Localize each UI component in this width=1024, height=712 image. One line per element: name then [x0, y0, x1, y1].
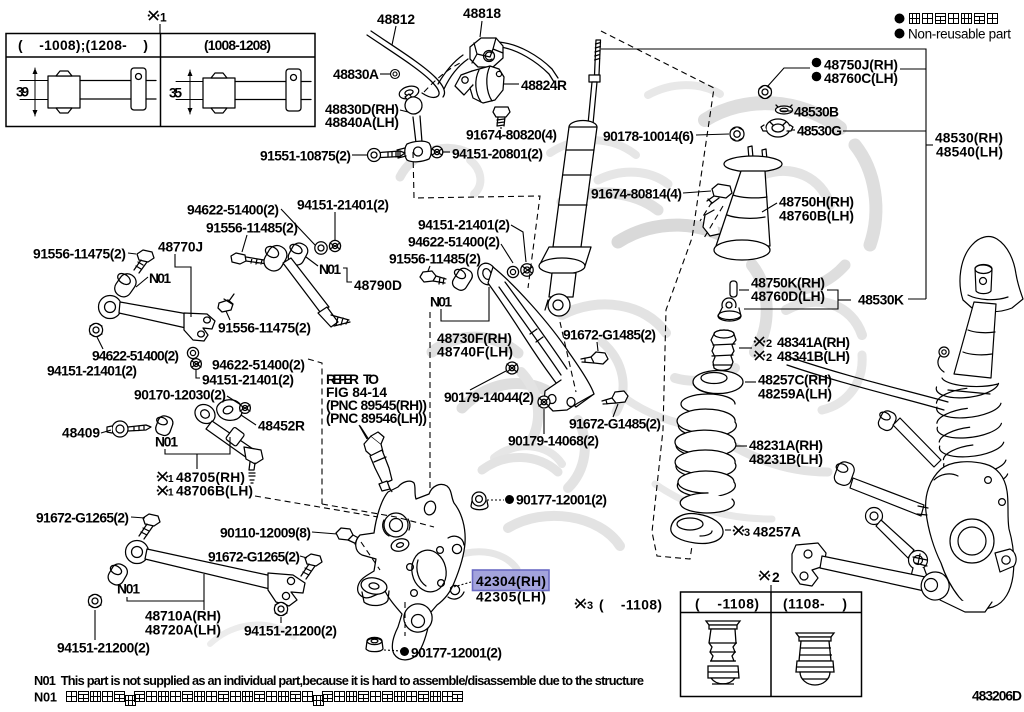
svg-text:N01: N01: [155, 435, 178, 450]
svg-text:94151-21200(2): 94151-21200(2): [57, 641, 150, 656]
svg-text:91672-G1485(2): 91672-G1485(2): [569, 417, 661, 432]
svg-text:3: 3: [587, 600, 593, 612]
svg-text:( -1108): ( -1108): [695, 597, 759, 612]
svg-text:48750H(RH): 48750H(RH): [779, 195, 854, 210]
svg-text:94151-21401(2): 94151-21401(2): [418, 218, 510, 233]
svg-text:48341A(RH): 48341A(RH): [777, 335, 850, 350]
svg-text:2: 2: [766, 352, 772, 364]
svg-text:91674-80814(4): 91674-80814(4): [591, 187, 682, 202]
svg-text:90170-12030(2): 90170-12030(2): [134, 388, 226, 403]
svg-text:94151-20801(2): 94151-20801(2): [452, 147, 543, 162]
svg-text:( -1008);(1208- ): ( -1008);(1208- ): [18, 38, 148, 53]
svg-text:48540(LH): 48540(LH): [936, 145, 1003, 160]
svg-text:48530K: 48530K: [858, 293, 904, 308]
svg-text:42304(RH): 42304(RH): [476, 574, 546, 589]
svg-text:94151-21401(2): 94151-21401(2): [202, 373, 294, 388]
svg-text:3: 3: [744, 527, 750, 539]
svg-text:91556-11485(2): 91556-11485(2): [206, 221, 298, 236]
svg-text:48760B(LH): 48760B(LH): [779, 209, 854, 224]
svg-text:90179-14068(2): 90179-14068(2): [508, 434, 599, 449]
svg-text:48341B(LH): 48341B(LH): [777, 349, 850, 364]
svg-text:(1008-1208): (1008-1208): [204, 38, 271, 53]
svg-text:91672-G1265(2): 91672-G1265(2): [208, 550, 300, 565]
svg-text:48720A(LH): 48720A(LH): [145, 623, 221, 638]
svg-text:1: 1: [160, 11, 167, 25]
svg-text:48259A(LH): 48259A(LH): [758, 387, 832, 402]
svg-text:94622-51400(2): 94622-51400(2): [212, 358, 305, 373]
svg-text:91556-11475(2): 91556-11475(2): [33, 247, 126, 262]
svg-text:90178-10014(6): 90178-10014(6): [603, 129, 694, 144]
svg-text:48231B(LH): 48231B(LH): [749, 452, 823, 467]
svg-text:N01: N01: [149, 271, 171, 286]
svg-text:2: 2: [766, 338, 772, 350]
svg-text:N01 This part is not supplied: N01 This part is not supplied as an indi…: [34, 673, 644, 688]
svg-text:48824R: 48824R: [521, 78, 567, 93]
svg-text:48740F(LH): 48740F(LH): [437, 345, 513, 360]
svg-text:48790D: 48790D: [354, 278, 402, 293]
svg-text:48257A: 48257A: [753, 525, 801, 540]
svg-text:1: 1: [168, 474, 174, 485]
svg-text:48706B(LH): 48706B(LH): [176, 484, 253, 499]
svg-text:48818: 48818: [463, 6, 501, 21]
svg-text:N01: N01: [34, 690, 57, 705]
svg-text:91556-11485(2): 91556-11485(2): [389, 252, 481, 267]
svg-text:90110-12009(8): 90110-12009(8): [220, 526, 311, 541]
svg-text:N01: N01: [319, 262, 341, 277]
svg-text:483206D: 483206D: [972, 689, 1022, 704]
svg-text:94622-51400(2): 94622-51400(2): [408, 235, 500, 250]
svg-text:48760C(LH): 48760C(LH): [824, 71, 898, 86]
svg-text:90177-12001(2): 90177-12001(2): [516, 493, 607, 508]
svg-text:N01: N01: [117, 582, 140, 597]
svg-text:94151-21401(2): 94151-21401(2): [47, 364, 137, 379]
svg-text:48452R: 48452R: [258, 419, 305, 434]
svg-text:48530B: 48530B: [794, 105, 839, 120]
svg-text:48710A(RH): 48710A(RH): [145, 609, 221, 624]
svg-text:48231A(RH): 48231A(RH): [749, 438, 823, 453]
svg-text:94622-51400(2): 94622-51400(2): [187, 203, 279, 218]
svg-text:48409: 48409: [62, 426, 100, 441]
svg-text:91674-80820(4): 91674-80820(4): [466, 128, 557, 143]
svg-text:39: 39: [16, 85, 29, 100]
svg-text:N01: N01: [430, 295, 452, 310]
svg-text:( -1108): ( -1108): [599, 598, 662, 613]
svg-text:91672-G1265(2): 91672-G1265(2): [36, 511, 129, 526]
svg-text:94622-51400(2): 94622-51400(2): [92, 349, 179, 364]
svg-text:(1108- ): (1108- ): [783, 597, 847, 612]
svg-text:42305(LH): 42305(LH): [476, 590, 546, 605]
svg-text:48840A(LH): 48840A(LH): [325, 115, 399, 130]
svg-text:2: 2: [772, 570, 780, 585]
svg-text:48812: 48812: [377, 12, 415, 27]
svg-text:(PNC 89546(LH)): (PNC 89546(LH)): [326, 411, 427, 426]
svg-text:Non-reusable part: Non-reusable part: [908, 27, 1011, 42]
svg-text:94151-21401(2): 94151-21401(2): [297, 198, 389, 213]
svg-text:35: 35: [169, 86, 182, 101]
svg-text:48530G: 48530G: [797, 124, 842, 139]
svg-text:91672-G1485(2): 91672-G1485(2): [563, 328, 656, 343]
svg-text:48770J: 48770J: [158, 240, 203, 255]
svg-text:48760D(LH): 48760D(LH): [751, 289, 825, 304]
svg-text:90177-12001(2): 90177-12001(2): [411, 646, 502, 661]
svg-text:91551-10875(2): 91551-10875(2): [260, 149, 351, 164]
svg-text:90179-14044(2): 90179-14044(2): [444, 390, 534, 405]
svg-text:48257C(RH): 48257C(RH): [758, 373, 832, 388]
svg-text:48530(RH): 48530(RH): [935, 131, 1003, 146]
svg-text:91556-11475(2): 91556-11475(2): [218, 321, 311, 336]
svg-text:1: 1: [168, 488, 174, 499]
svg-text:94151-21200(2): 94151-21200(2): [244, 624, 337, 639]
svg-text:48830A: 48830A: [333, 67, 379, 82]
